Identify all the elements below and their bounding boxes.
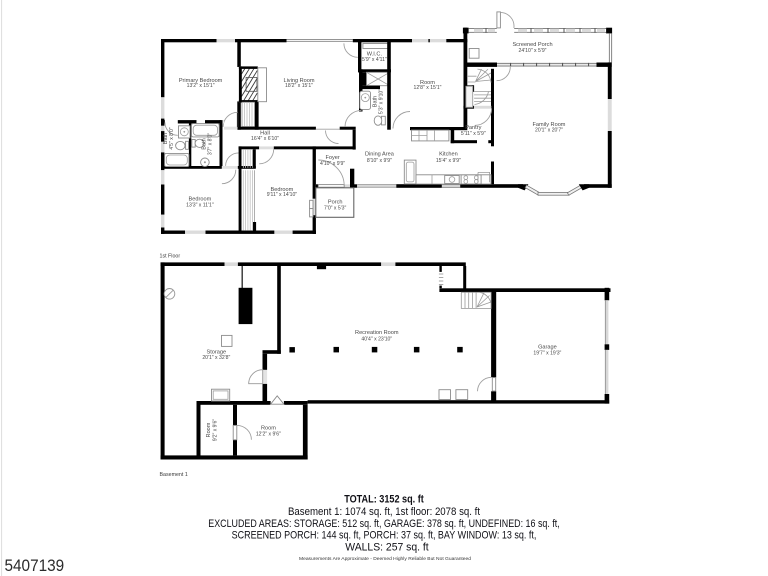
svg-text:Room: Room bbox=[206, 422, 212, 437]
svg-text:16'4" x 6'10": 16'4" x 6'10" bbox=[251, 136, 279, 142]
svg-text:8'10" x 9'9": 8'10" x 9'9" bbox=[367, 158, 392, 164]
svg-text:5'3" x 9'10": 5'3" x 9'10" bbox=[379, 89, 385, 114]
svg-text:12'2" x 9'6": 12'2" x 9'6" bbox=[256, 432, 281, 438]
svg-text:Measurements Are Approximate -: Measurements Are Approximate - Deemed Hi… bbox=[299, 556, 471, 561]
svg-text:20'1" x 20'7": 20'1" x 20'7" bbox=[535, 128, 563, 134]
svg-text:3'7" x 8'0": 3'7" x 8'0" bbox=[208, 133, 214, 155]
svg-text:9'11" x 14'10": 9'11" x 14'10" bbox=[267, 192, 298, 198]
svg-text:Recreation Room: Recreation Room bbox=[355, 330, 399, 336]
svg-text:4'5" x 8'0": 4'5" x 8'0" bbox=[169, 127, 175, 149]
svg-text:Kitchen: Kitchen bbox=[439, 152, 458, 158]
svg-text:Porch: Porch bbox=[328, 199, 343, 205]
svg-text:24'10" x 5'9": 24'10" x 5'9" bbox=[519, 48, 547, 54]
svg-text:EXCLUDED AREAS: STORAGE: 512 s: EXCLUDED AREAS: STORAGE: 512 sq. ft, GAR… bbox=[208, 518, 560, 530]
svg-text:Garage: Garage bbox=[538, 344, 557, 350]
svg-text:Basement 1: Basement 1 bbox=[160, 472, 188, 478]
svg-text:18'2" x 15'1": 18'2" x 15'1" bbox=[285, 83, 313, 89]
svg-text:13'2" x 15'1": 13'2" x 15'1" bbox=[187, 83, 215, 89]
svg-text:TOTAL: 3152 sq. ft: TOTAL: 3152 sq. ft bbox=[344, 493, 424, 505]
svg-text:15'4" x 9'9": 15'4" x 9'9" bbox=[436, 158, 461, 164]
svg-text:12'8" x 15'1": 12'8" x 15'1" bbox=[414, 85, 442, 91]
svg-text:Bath: Bath bbox=[373, 96, 379, 108]
svg-text:SCREENED PORCH: 144 sq. ft, PO: SCREENED PORCH: 144 sq. ft, PORCH: 37 sq… bbox=[232, 530, 537, 542]
svg-text:Room: Room bbox=[261, 425, 276, 431]
svg-text:5'9" x 4'11": 5'9" x 4'11" bbox=[362, 57, 387, 63]
svg-text:Dining Area: Dining Area bbox=[365, 152, 395, 158]
svg-text:5'11" x 5'9": 5'11" x 5'9" bbox=[461, 131, 486, 137]
svg-text:5407139: 5407139 bbox=[5, 557, 65, 575]
svg-text:Basement 1: 1074 sq. ft, 1st f: Basement 1: 1074 sq. ft, 1st floor: 2078… bbox=[288, 506, 481, 518]
svg-text:7'0" x 5'3": 7'0" x 5'3" bbox=[324, 206, 346, 212]
svg-text:1st Floor: 1st Floor bbox=[160, 254, 181, 260]
svg-text:19'7" x 19'3": 19'7" x 19'3" bbox=[533, 351, 561, 357]
svg-text:4'10" x 9'9": 4'10" x 9'9" bbox=[320, 161, 345, 167]
svg-text:13'3" x 11'1": 13'3" x 11'1" bbox=[186, 202, 214, 208]
svg-text:9'2" x 9'6": 9'2" x 9'6" bbox=[212, 419, 218, 441]
svg-text:WALLS: 257 sq. ft: WALLS: 257 sq. ft bbox=[345, 541, 429, 553]
svg-text:40'4" x 23'10": 40'4" x 23'10" bbox=[361, 337, 392, 343]
svg-text:20'1" x 32'8": 20'1" x 32'8" bbox=[202, 355, 230, 361]
